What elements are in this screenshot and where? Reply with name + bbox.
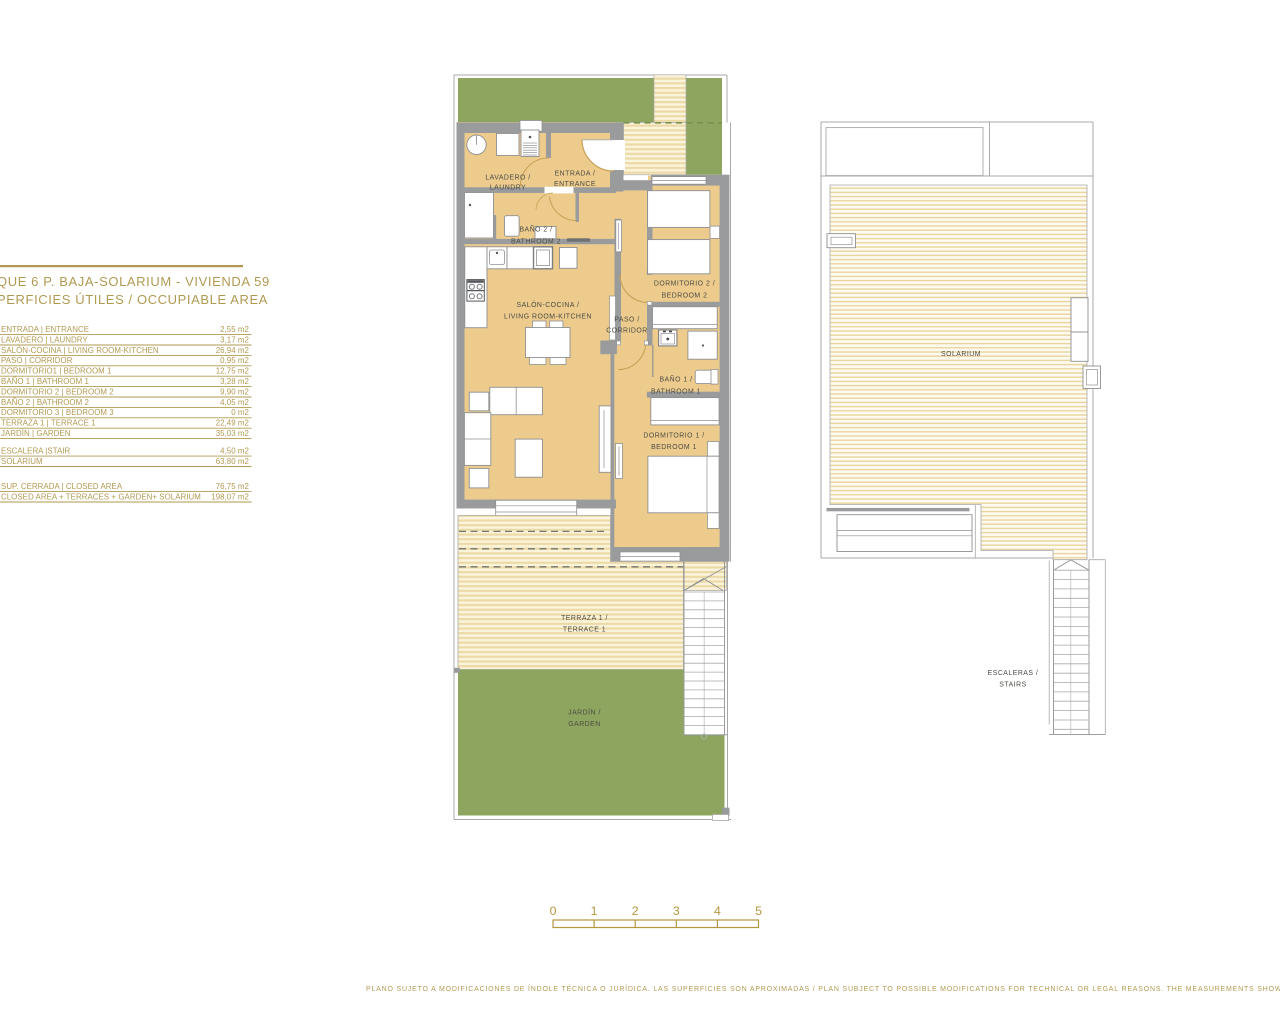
svg-text:SALÓN-COCINA | LIVING ROOM-K: SALÓN-COCINA | LIVING ROOM-KITCHEN [1, 346, 159, 355]
svg-text:SALÓN-COCINA /: SALÓN-COCINA / [517, 300, 580, 309]
svg-text:26,94 m2: 26,94 m2 [216, 346, 249, 355]
svg-text:LAVADERO /: LAVADERO / [485, 175, 530, 182]
svg-text:ESCALERA |STAIR: ESCALERA |STAIR [1, 447, 71, 456]
svg-text:PLANO SUJETO A MODIFICACIONES: PLANO SUJETO A MODIFICACIONES DE ÍNDOLE … [366, 984, 1280, 993]
svg-text:SUP. CERRADA | CLOSED AREA: SUP. CERRADA | CLOSED AREA [1, 482, 123, 491]
svg-text:35,03 m2: 35,03 m2 [216, 429, 249, 438]
svg-text:PASO | CORRIDOR: PASO | CORRIDOR [1, 356, 73, 365]
svg-text:ENTRADA /: ENTRADA / [555, 171, 596, 178]
svg-text:0 m2: 0 m2 [231, 408, 249, 417]
svg-text:DORMITORIO 2 | BEDROOM 2: DORMITORIO 2 | BEDROOM 2 [1, 387, 114, 396]
svg-text:ESCALERAS /: ESCALERAS / [988, 670, 1039, 677]
svg-text:SOLARIUM: SOLARIUM [1, 457, 43, 466]
svg-text:TERRAZA 1 /: TERRAZA 1 / [561, 615, 608, 622]
svg-text:5: 5 [755, 904, 762, 918]
svg-text:BAÑO 2 /: BAÑO 2 / [519, 225, 552, 234]
svg-text:4,50 m2: 4,50 m2 [220, 447, 249, 456]
svg-text:GARDEN: GARDEN [568, 721, 600, 728]
svg-text:CLOSED AREA + TERRACES + GARDE: CLOSED AREA + TERRACES + GARDEN+ SOLARIU… [1, 492, 201, 501]
svg-text:PASO /: PASO / [614, 317, 639, 324]
svg-text:DORMITORIO 3 | BEDROOM 3: DORMITORIO 3 | BEDROOM 3 [1, 408, 114, 417]
svg-text:198,07 m2: 198,07 m2 [211, 492, 249, 501]
svg-text:JARDÍN | GARDEN: JARDÍN | GARDEN [1, 429, 71, 438]
svg-text:DORMITORIO 1 /: DORMITORIO 1 / [643, 433, 704, 440]
svg-text:TERRACE 1: TERRACE 1 [563, 627, 606, 634]
svg-text:63,80 m2: 63,80 m2 [216, 457, 249, 466]
svg-text:STAIRS: STAIRS [999, 682, 1026, 689]
svg-text:LIVING ROOM-KITCHEN: LIVING ROOM-KITCHEN [504, 314, 592, 321]
svg-text:3,17 m2: 3,17 m2 [220, 335, 249, 344]
svg-text:DORMITORIO1 | BEDROOM 1: DORMITORIO1 | BEDROOM 1 [1, 367, 111, 376]
svg-text:4,05 m2: 4,05 m2 [220, 398, 249, 407]
svg-text:QUE 6 P. BAJA-SOLARIUM - VIVIE: QUE 6 P. BAJA-SOLARIUM - VIVIENDA 59 [0, 274, 270, 289]
svg-text:BAÑO 1 /: BAÑO 1 / [659, 375, 692, 384]
svg-text:PERFICIES ÚTILES / OCCUPIABLE: PERFICIES ÚTILES / OCCUPIABLE AREA [0, 292, 268, 307]
svg-text:BAÑO 2 | BATHROOM 2: BAÑO 2 | BATHROOM 2 [1, 398, 89, 407]
svg-text:1: 1 [591, 904, 598, 918]
svg-text:2,55 m2: 2,55 m2 [220, 325, 249, 334]
svg-text:12,75 m2: 12,75 m2 [216, 367, 249, 376]
svg-text:76,75 m2: 76,75 m2 [216, 482, 249, 491]
svg-text:ENTRADA | ENTRANCE: ENTRADA | ENTRANCE [1, 325, 89, 334]
svg-text:LAVADERO | LAUNDRY: LAVADERO | LAUNDRY [1, 335, 88, 344]
svg-text:BAÑO 1 | BATHROOM 1: BAÑO 1 | BATHROOM 1 [1, 377, 89, 386]
svg-text:3,28 m2: 3,28 m2 [220, 377, 249, 386]
svg-text:BEDROOM 1: BEDROOM 1 [651, 444, 697, 451]
svg-text:JARDÍN /: JARDÍN / [568, 708, 601, 717]
svg-text:DORMITORIO 2 /: DORMITORIO 2 / [654, 281, 715, 288]
svg-text:BATHROOM 2: BATHROOM 2 [511, 239, 561, 246]
svg-text:LAUNDRY: LAUNDRY [490, 185, 526, 192]
svg-text:22,49 m2: 22,49 m2 [216, 419, 249, 428]
svg-text:0: 0 [550, 904, 557, 918]
svg-text:ENTRANCE: ENTRANCE [554, 181, 596, 188]
svg-text:BATHROOM 1: BATHROOM 1 [651, 389, 701, 396]
svg-text:2: 2 [632, 904, 639, 918]
svg-text:CORRIDOR: CORRIDOR [606, 328, 648, 335]
svg-text:BEDROOM 2: BEDROOM 2 [662, 293, 708, 300]
svg-text:3: 3 [673, 904, 680, 918]
svg-text:9,90 m2: 9,90 m2 [220, 387, 249, 396]
svg-text:TERRAZA 1 | TERRACE 1: TERRAZA 1 | TERRACE 1 [1, 419, 96, 428]
svg-text:4: 4 [714, 904, 721, 918]
svg-text:0,95 m2: 0,95 m2 [220, 356, 249, 365]
svg-text:SOLARIUM: SOLARIUM [941, 351, 981, 358]
